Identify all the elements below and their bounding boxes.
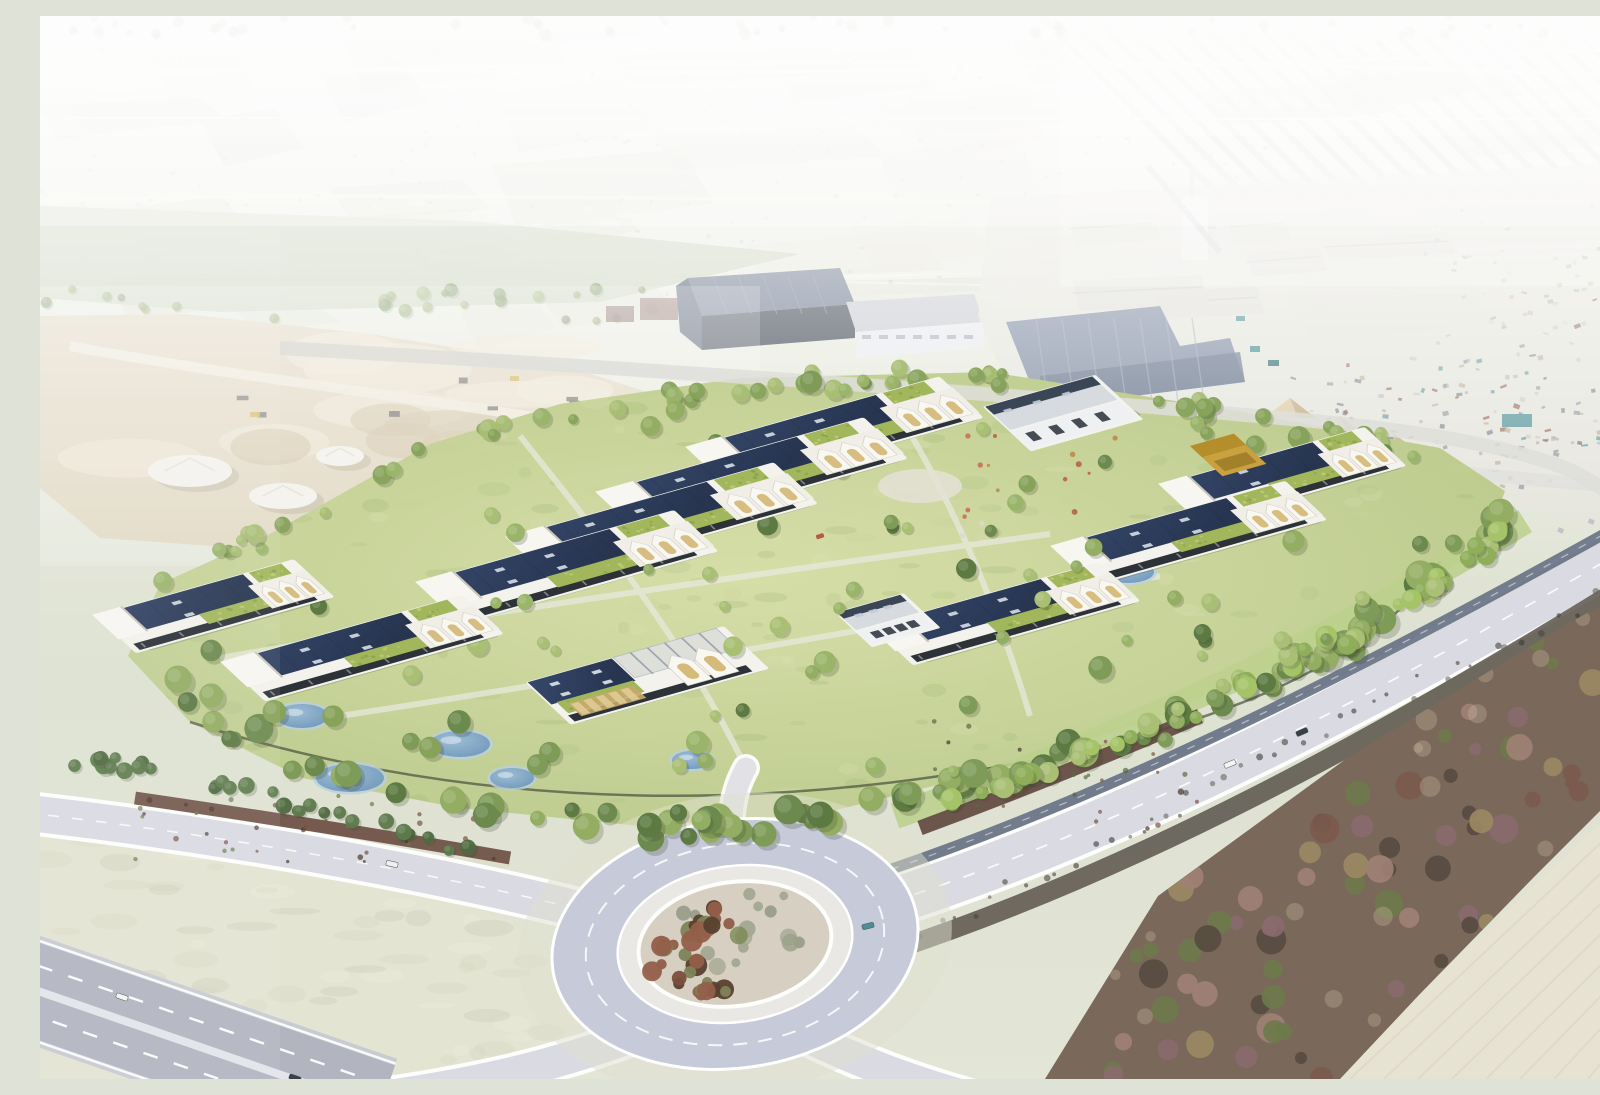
aerial-rendering: Oblique aerial architectural rendering o… bbox=[40, 16, 1600, 1079]
aerial-render-figure: Oblique aerial architectural rendering o… bbox=[40, 16, 1600, 1079]
